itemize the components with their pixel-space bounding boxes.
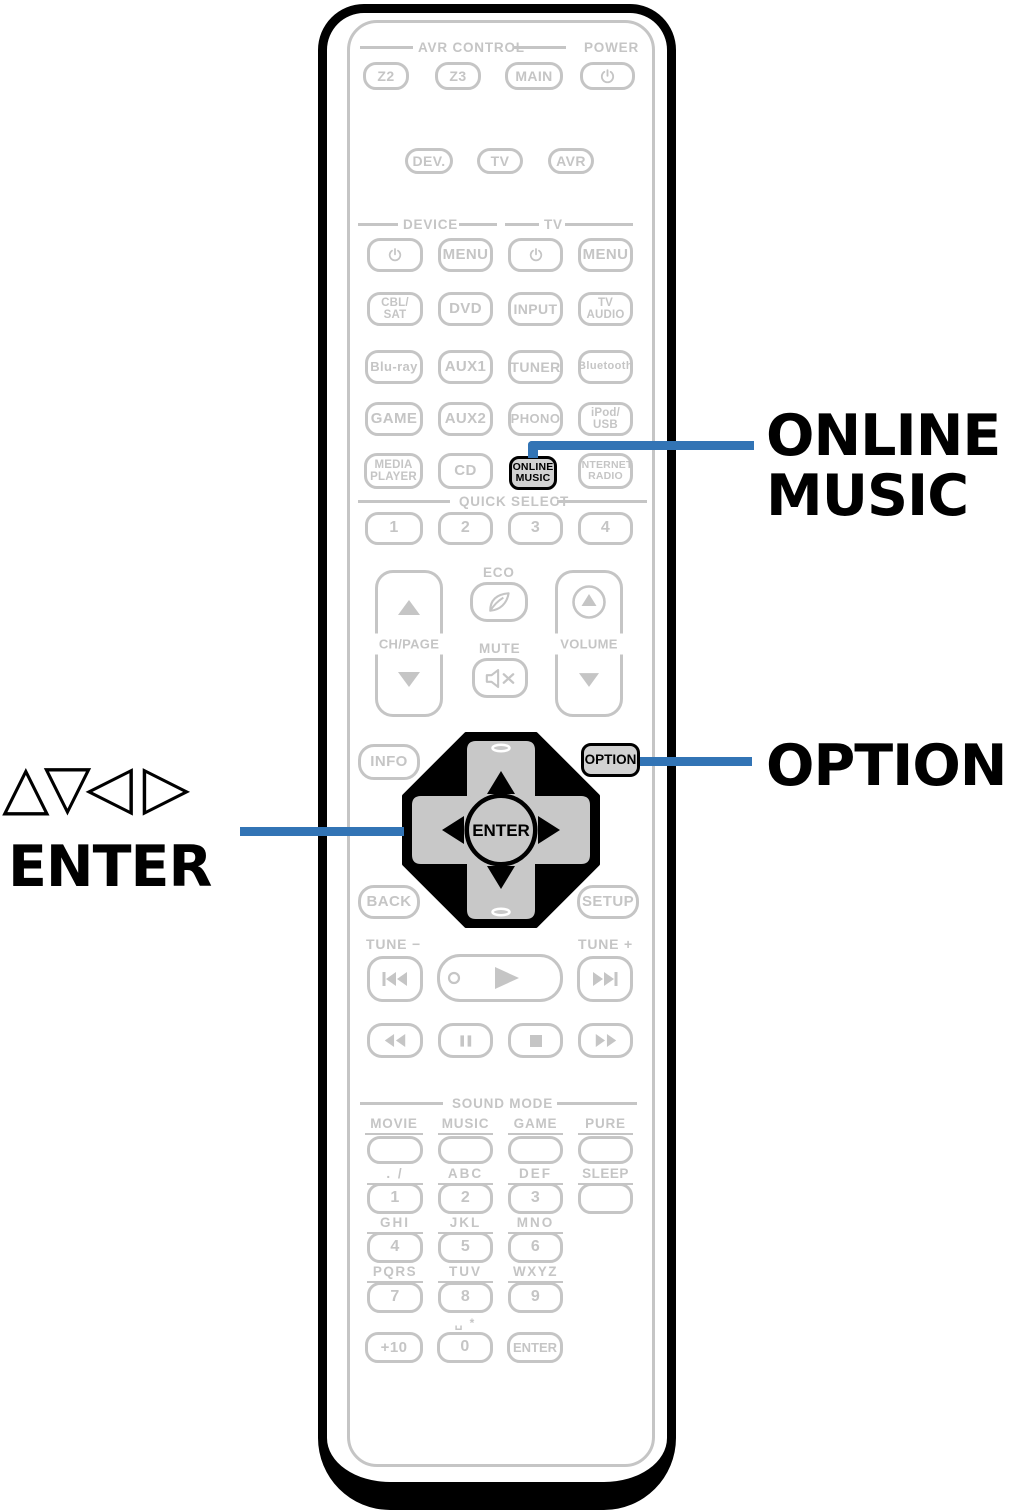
cbl-sat-line2: SAT [384,309,407,321]
divider [513,46,566,49]
sound-mode-section-label: SOUND MODE [452,1096,553,1111]
volume-up-icon[interactable] [571,584,607,620]
online-music-callout-line1: ONLINE [766,406,1000,466]
skip-forward-button[interactable] [577,956,633,1002]
device-power-button[interactable] [367,238,423,272]
tune-minus-label: TUNE − [366,936,421,952]
quick-select-1-button[interactable]: 1 [365,512,423,545]
plus10-button[interactable]: +10 [365,1332,423,1363]
sound-mode-music-button[interactable] [438,1136,493,1164]
key0-symbols-label: ␣ * [438,1316,493,1330]
tv-mode-button[interactable]: TV [477,148,523,174]
online-music-button[interactable]: ONLINE MUSIC [509,456,557,490]
sound-mode-movie-label: MOVIE [365,1116,423,1135]
skip-back-icon [381,971,409,987]
pause-icon [458,1033,474,1049]
input-button[interactable]: INPUT [508,292,563,326]
divider [557,500,647,503]
zone3-button[interactable]: Z3 [435,62,481,90]
quick-select-3-button[interactable]: 3 [508,512,563,545]
key9-letters-label: WXYZ [508,1264,563,1283]
ipod-usb-button[interactable]: iPod/ USB [578,402,633,436]
sound-mode-movie-button[interactable] [367,1136,423,1164]
stop-icon [529,1034,543,1048]
play-icon [445,965,555,991]
key-2-button[interactable]: 2 [438,1183,493,1214]
cursor-callout-line [240,827,404,836]
eco-button[interactable] [470,582,528,622]
key-6-button[interactable]: 6 [508,1232,563,1263]
device-section-label: DEVICE [403,217,458,232]
sleep-button[interactable] [578,1183,633,1214]
eco-label: ECO [483,565,515,580]
tv-power-button[interactable] [508,238,563,272]
rewind-button[interactable] [367,1023,423,1058]
sound-mode-game-button[interactable] [508,1136,563,1164]
mute-label: MUTE [479,641,520,656]
play-button[interactable] [437,954,563,1002]
skip-forward-icon [591,971,619,987]
key7-letters-label: PQRS [367,1264,423,1283]
cursor-pad: ENTER [402,732,600,928]
quick-select-4-button[interactable]: 4 [578,512,633,545]
tv-audio-button[interactable]: TV AUDIO [578,292,633,326]
key-9-button[interactable]: 9 [508,1282,563,1313]
cbl-sat-line1: CBL/ [381,297,409,309]
sound-mode-music-label: MUSIC [438,1116,493,1135]
cbl-sat-button[interactable]: CBL/ SAT [367,292,423,326]
option-callout-label: OPTION [766,733,1006,799]
key-5-button[interactable]: 5 [438,1232,493,1263]
channel-down-icon[interactable] [398,672,420,687]
power-section-label: POWER [584,40,639,55]
sound-mode-pure-button[interactable] [578,1136,633,1164]
online-music-line2: MUSIC [516,473,551,484]
key-1-button[interactable]: 1 [367,1183,423,1214]
power-button[interactable] [580,62,635,90]
divider [557,1102,637,1105]
skip-back-button[interactable] [367,956,423,1002]
power-icon [599,68,616,85]
internet-radio-button[interactable]: INTERNET RADIO [578,453,633,489]
rewind-icon [382,1033,408,1048]
tv-menu-button[interactable]: MENU [578,238,633,272]
quick-select-2-button[interactable]: 2 [438,512,493,545]
tuner-button[interactable]: TUNER [508,350,563,384]
speaker-mute-icon [484,667,516,690]
ipod-usb-line2: USB [593,419,618,431]
sound-mode-game-label: GAME [508,1116,563,1135]
ipod-usb-line1: iPod/ [591,407,620,419]
media-player-line1: MEDIA [374,459,412,471]
keypad-enter-button[interactable]: ENTER [507,1332,563,1363]
stop-button[interactable] [508,1023,563,1058]
cursor-callout-symbols: △▽◁ ▷ [2,755,184,819]
channel-up-icon[interactable] [398,600,420,615]
online-music-callout-line [528,441,754,450]
media-player-button[interactable]: MEDIA PLAYER [364,453,423,489]
fast-forward-button[interactable] [578,1023,633,1058]
dev-mode-button[interactable]: DEV. [405,148,453,174]
divider [358,500,450,503]
device-menu-button[interactable]: MENU [438,238,493,272]
blu-ray-button[interactable]: Blu-ray [365,350,423,384]
channel-page-rocker[interactable]: CH/PAGE [375,570,443,717]
tv-audio-line1: TV [598,297,613,309]
manual-page: { "callouts": { "line_color": "#3274b5",… [0,0,1021,1510]
channel-page-label: CH/PAGE [375,633,443,654]
volume-label: VOLUME [555,633,623,654]
online-music-callout-label: ONLINE MUSIC [766,406,1000,526]
volume-rocker[interactable]: VOLUME [555,570,623,717]
aux2-button[interactable]: AUX2 [438,402,493,436]
key-0-button[interactable]: 0 [437,1332,493,1363]
fast-forward-icon [593,1033,619,1048]
main-zone-button[interactable]: MAIN [505,62,563,90]
divider [360,1102,443,1105]
cursor-callout-enter-label: ENTER [8,834,211,900]
pause-button[interactable] [438,1023,493,1058]
setup-button[interactable]: SETUP [577,885,639,919]
avr-mode-button[interactable]: AVR [548,148,594,174]
key-4-button[interactable]: 4 [367,1232,423,1263]
game-button[interactable]: GAME [365,402,423,436]
tv-audio-line2: AUDIO [586,309,624,321]
volume-down-icon[interactable] [579,673,599,687]
back-button[interactable]: BACK [358,885,420,919]
aux1-button[interactable]: AUX1 [438,350,493,384]
dvd-button[interactable]: DVD [438,292,493,326]
phono-button[interactable]: PHONO [508,402,563,436]
internet-radio-line2: RADIO [588,471,623,482]
divider [360,46,413,49]
key-3-button[interactable]: 3 [508,1183,563,1214]
tune-plus-label: TUNE + [578,936,633,952]
divider [565,223,633,226]
enter-button-label: ENTER [472,821,530,840]
option-callout-line [640,757,752,766]
quick-select-section-label: QUICK SELECT [459,494,569,509]
sound-mode-pure-label: PURE [578,1116,633,1135]
cd-button[interactable]: CD [438,453,493,489]
divider [459,223,497,226]
avr-control-section-label: AVR CONTROL [418,40,525,55]
key8-letters-label: TUV [438,1264,493,1283]
divider [505,223,539,226]
bluetooth-button[interactable]: Bluetooth [578,350,633,384]
key-8-button[interactable]: 8 [438,1282,493,1313]
online-music-callout-line2: MUSIC [766,466,1000,526]
mute-button[interactable] [472,658,528,698]
leaf-icon [485,588,513,616]
divider [358,223,398,226]
key-7-button[interactable]: 7 [367,1282,423,1313]
power-icon [528,247,544,263]
media-player-line2: PLAYER [370,471,417,483]
power-icon [387,247,403,263]
tv-section-label: TV [544,217,563,232]
zone2-button[interactable]: Z2 [363,62,409,90]
